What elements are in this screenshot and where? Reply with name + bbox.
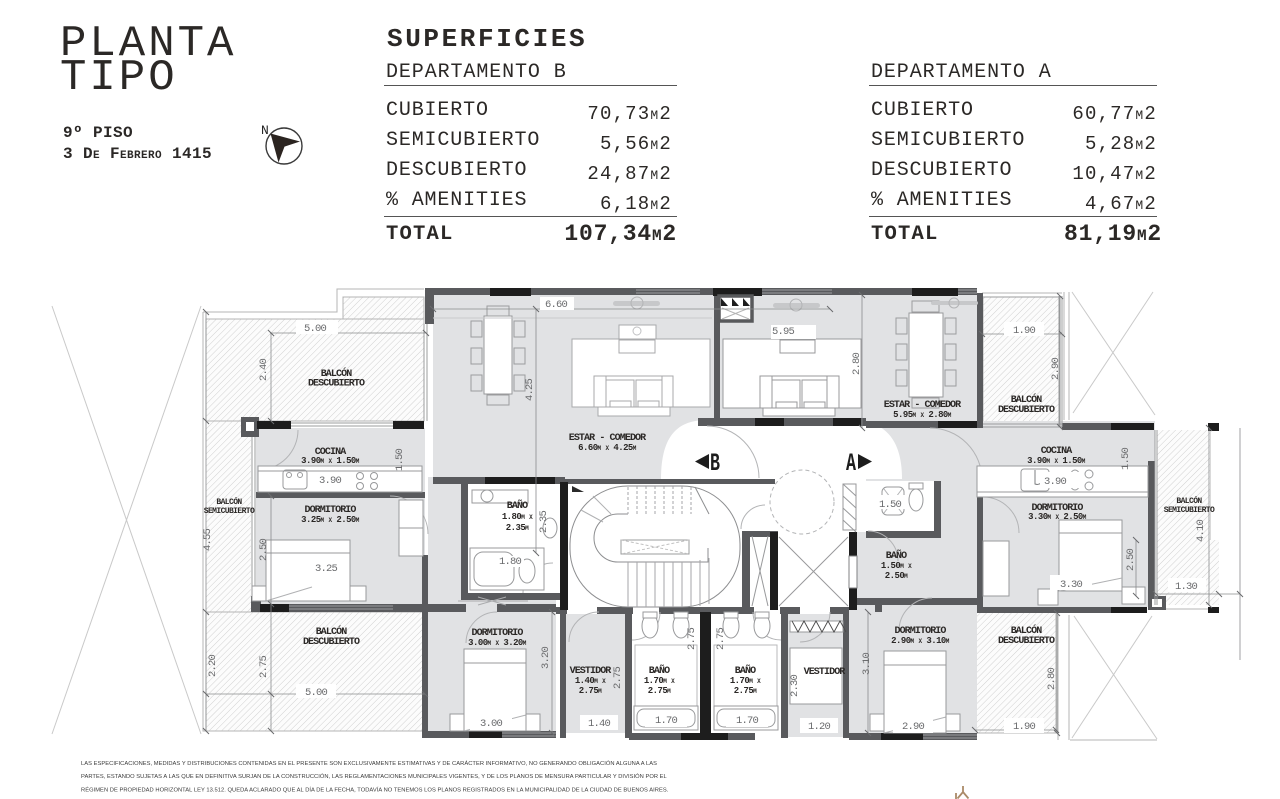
svg-text:2.90: 2.90 xyxy=(1050,358,1062,381)
svg-text:1.50: 1.50 xyxy=(394,449,406,472)
svg-text:2.35: 2.35 xyxy=(538,511,550,534)
svg-text:5.00: 5.00 xyxy=(304,323,327,335)
svg-text:1.80: 1.80 xyxy=(499,556,522,568)
svg-text:5.95m x 2.80m: 5.95m x 2.80m xyxy=(893,410,952,420)
svg-text:1.70m x: 1.70m x xyxy=(730,676,761,686)
svg-text:2.30: 2.30 xyxy=(789,675,801,698)
svg-text:1.40m x: 1.40m x xyxy=(575,676,606,686)
svg-text:2.50: 2.50 xyxy=(1125,549,1137,572)
svg-text:2.75: 2.75 xyxy=(715,628,727,651)
svg-text:1.90: 1.90 xyxy=(1013,721,1036,733)
svg-text:SEMICUBIERTO: SEMICUBIERTO xyxy=(204,507,255,516)
svg-text:3.00: 3.00 xyxy=(480,718,503,730)
svg-text:BALCÓN: BALCÓN xyxy=(316,624,348,638)
svg-text:1.50: 1.50 xyxy=(879,499,902,511)
svg-text:2.20: 2.20 xyxy=(207,655,219,678)
svg-text:3.30m x 2.50m: 3.30m x 2.50m xyxy=(1028,512,1087,522)
svg-text:1.90: 1.90 xyxy=(1013,325,1036,337)
svg-text:2.75m: 2.75m xyxy=(579,686,602,696)
svg-text:SEMICUBIERTO: SEMICUBIERTO xyxy=(1164,506,1215,515)
svg-text:2.90: 2.90 xyxy=(902,721,925,733)
svg-text:BALCÓN: BALCÓN xyxy=(1011,623,1043,637)
svg-text:1.70m x: 1.70m x xyxy=(644,676,675,686)
svg-text:6.60m x 4.25m: 6.60m x 4.25m xyxy=(578,443,637,453)
svg-text:3.25: 3.25 xyxy=(315,563,338,575)
svg-text:2.75m: 2.75m xyxy=(648,686,671,696)
svg-text:2.75: 2.75 xyxy=(258,656,270,679)
svg-text:2.35m: 2.35m xyxy=(506,523,529,533)
svg-text:2.40: 2.40 xyxy=(258,359,270,382)
svg-text:3.10: 3.10 xyxy=(861,653,873,676)
svg-text:DESCUBIERTO: DESCUBIERTO xyxy=(998,636,1055,647)
svg-text:2.50: 2.50 xyxy=(258,539,270,562)
svg-text:VESTIDOR: VESTIDOR xyxy=(804,667,846,678)
svg-text:DESCUBIERTO: DESCUBIERTO xyxy=(303,637,360,648)
svg-text:1.30: 1.30 xyxy=(1175,581,1198,593)
svg-text:1.40: 1.40 xyxy=(588,718,611,730)
svg-text:DESCUBIERTO: DESCUBIERTO xyxy=(998,405,1055,416)
svg-text:4.10: 4.10 xyxy=(1195,520,1207,543)
svg-text:3.90: 3.90 xyxy=(319,475,342,487)
svg-text:2.75m: 2.75m xyxy=(734,686,757,696)
svg-text:5.95: 5.95 xyxy=(772,326,795,338)
svg-text:BALCÓN: BALCÓN xyxy=(216,497,242,507)
svg-text:2.80: 2.80 xyxy=(1046,668,1058,691)
svg-text:BALCÓN: BALCÓN xyxy=(1011,392,1043,406)
svg-text:DESCUBIERTO: DESCUBIERTO xyxy=(308,379,365,390)
svg-text:3.30: 3.30 xyxy=(1060,579,1083,591)
svg-text:B: B xyxy=(710,449,720,478)
svg-text:BALCÓN: BALCÓN xyxy=(1176,496,1202,506)
svg-text:2.75: 2.75 xyxy=(612,667,624,690)
svg-text:1.80m x: 1.80m x xyxy=(502,512,533,522)
svg-text:5.00: 5.00 xyxy=(305,687,328,699)
svg-text:1.50: 1.50 xyxy=(1120,448,1132,471)
svg-text:3.90: 3.90 xyxy=(1044,476,1067,488)
svg-text:3.90m x 1.50m: 3.90m x 1.50m xyxy=(1027,456,1086,466)
svg-text:3.90m x 1.50m: 3.90m x 1.50m xyxy=(301,456,360,466)
svg-text:BAÑO: BAÑO xyxy=(507,499,528,512)
svg-text:4.25: 4.25 xyxy=(524,379,536,402)
svg-text:2.75: 2.75 xyxy=(686,628,698,651)
svg-text:1.70: 1.70 xyxy=(655,715,678,727)
svg-text:3.00m x 3.20m: 3.00m x 3.20m xyxy=(468,638,527,648)
svg-text:6.60: 6.60 xyxy=(545,299,568,311)
svg-text:3.20: 3.20 xyxy=(540,647,552,670)
svg-text:1.70: 1.70 xyxy=(736,715,759,727)
svg-text:2.50m: 2.50m xyxy=(885,571,908,581)
svg-text:2.80: 2.80 xyxy=(851,353,863,376)
svg-text:1.50m x: 1.50m x xyxy=(881,561,912,571)
svg-text:1.20: 1.20 xyxy=(808,721,831,733)
svg-text:3.25m x 2.50m: 3.25m x 2.50m xyxy=(301,515,360,525)
svg-text:4.55: 4.55 xyxy=(202,529,214,552)
svg-text:A: A xyxy=(846,449,856,478)
svg-text:2.90m x 3.10m: 2.90m x 3.10m xyxy=(891,636,950,646)
